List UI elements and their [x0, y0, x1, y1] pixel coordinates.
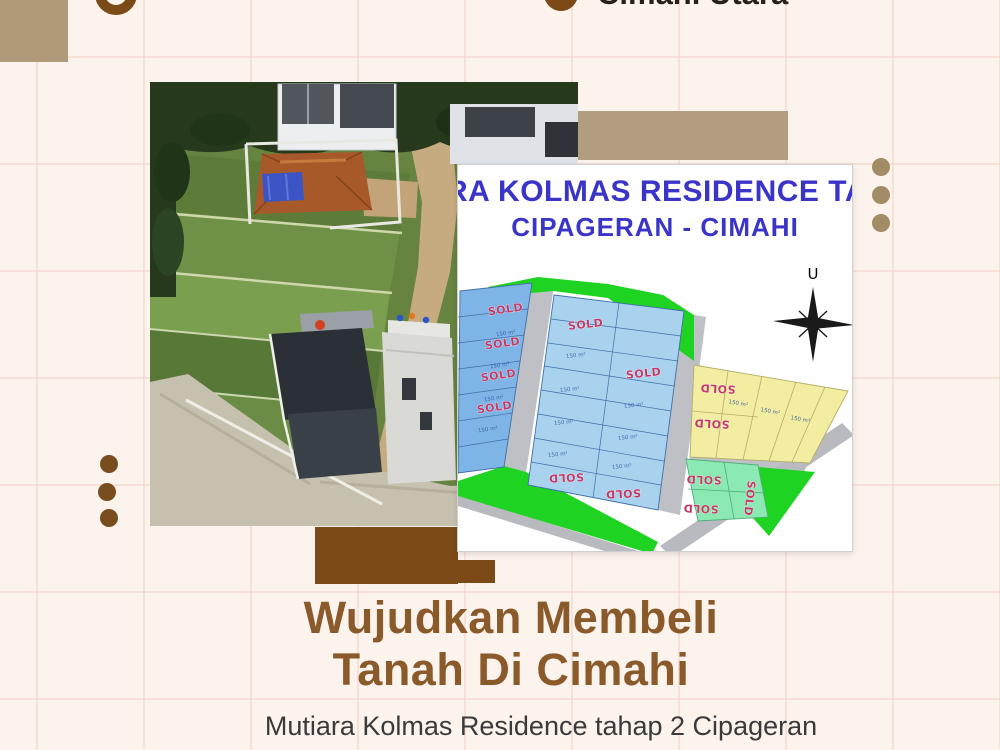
compass-north-label: U: [808, 265, 819, 283]
sold-label: SOLD: [605, 486, 641, 501]
phone-icon: [95, 0, 137, 15]
siteplan-image: SOLDSOLDSOLDSOLDSOLDSOLDSOLDSOLDSOLDSOLD…: [457, 164, 853, 552]
decor-dot: [872, 186, 890, 204]
sold-label: SOLD: [683, 501, 719, 515]
decor-rect-top-right: [578, 111, 788, 160]
sold-label: SOLD: [694, 416, 730, 431]
subtitle: Mutiara Kolmas Residence tahap 2 Cipager…: [41, 711, 1000, 742]
decor-dot: [100, 509, 118, 527]
headline-line1: Wujudkan Membeli: [11, 592, 1000, 644]
decor-rect-bottom: [315, 527, 458, 584]
decor-dot: [872, 214, 890, 232]
decor-dot: [872, 158, 890, 176]
compass-icon: [773, 287, 852, 362]
decor-dot: [98, 483, 116, 501]
location-pin-icon: [544, 0, 578, 11]
headline-line2: Tanah Di Cimahi: [11, 644, 1000, 696]
sold-label: SOLD: [700, 381, 736, 396]
decor-rect-bottom-step: [458, 560, 495, 583]
location-label: Cimahi Utara: [597, 0, 788, 12]
white-building: [382, 313, 456, 484]
decor-dot: [100, 455, 118, 473]
buildings-top-right: [450, 104, 578, 164]
siteplan-title: RA KOLMAS RESIDENCE TA: [457, 175, 853, 209]
sold-label: SOLD: [686, 472, 722, 486]
decor-square-top-left: [0, 0, 68, 62]
headline: Wujudkan Membeli Tanah Di Cimahi: [11, 592, 1000, 696]
siteplan-subtitle: CIPAGERAN - CIMAHI: [458, 212, 852, 243]
flyer-canvas: Cimahi Utara: [0, 0, 1000, 750]
sold-label: SOLD: [548, 470, 584, 485]
blue-tarp: [262, 172, 304, 202]
